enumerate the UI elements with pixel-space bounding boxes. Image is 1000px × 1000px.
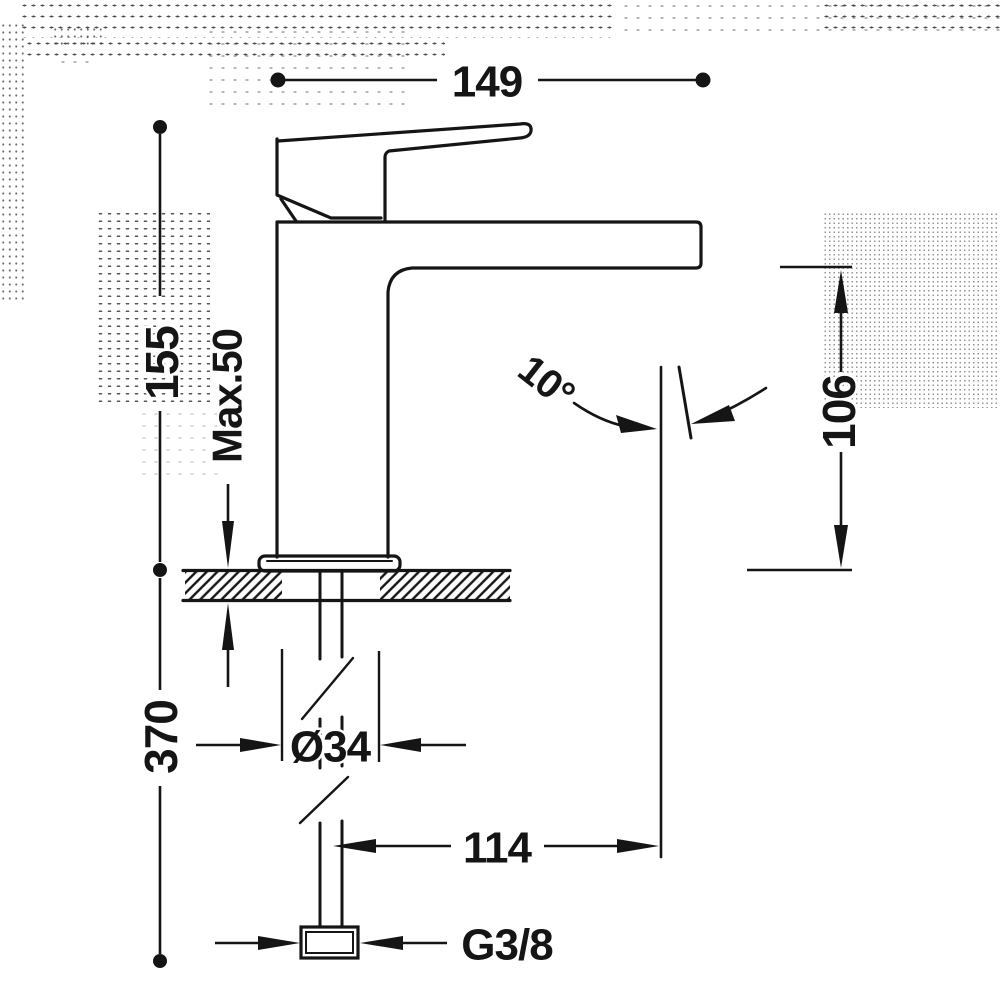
technical-drawing-canvas: 149 155 Max.50 370 <box>0 0 1000 1000</box>
thread-connector-nut-inner <box>306 932 353 953</box>
dim-dot <box>153 563 167 577</box>
label-outlet-reach: 114 <box>463 824 533 873</box>
dim-below-deck-length: 370 <box>135 578 187 968</box>
dim-dot <box>696 73 711 88</box>
dim-outlet-height: 106 <box>747 267 865 570</box>
label-outlet-height: 106 <box>813 375 865 449</box>
label-thread-size: G3/8 <box>461 921 553 970</box>
label-spout-width: 149 <box>452 58 522 107</box>
outlet-angle-line <box>679 367 691 438</box>
arrowhead-left <box>333 839 376 853</box>
dim-dot <box>153 120 167 134</box>
arrowhead-down <box>834 525 848 568</box>
handle-base <box>277 139 381 218</box>
dim-outlet-angle: 10° <box>510 347 766 433</box>
arrowhead-right <box>617 839 659 853</box>
dim-dot <box>153 954 167 968</box>
label-hole-diameter: Ø34 <box>290 723 372 772</box>
deck-hatch-left <box>185 572 282 599</box>
handle-lever <box>278 124 531 220</box>
dim-max-deck-thickness: Max.50 <box>204 329 251 687</box>
arrowhead-right <box>240 738 281 752</box>
label-below-deck-length: 370 <box>135 700 187 774</box>
deck-hatch-right <box>380 572 510 599</box>
arrowhead-up <box>222 603 234 650</box>
arrowhead-right <box>258 936 300 950</box>
label-max-deck-thickness: Max.50 <box>204 329 251 463</box>
angle-leader-left <box>574 403 624 426</box>
arrowhead-left <box>380 738 421 752</box>
arrowhead-up <box>834 270 848 313</box>
outlet-reference <box>661 367 691 857</box>
arrowhead-left <box>360 936 403 950</box>
label-height-above-deck: 155 <box>136 326 188 400</box>
dimensions-layer: 149 155 Max.50 370 <box>135 58 865 970</box>
arrowhead-down <box>222 521 234 568</box>
arrowhead-right <box>616 415 657 433</box>
label-outlet-angle: 10° <box>510 347 582 417</box>
faucet-body-outline <box>277 222 701 557</box>
dim-height-above-deck: 155 <box>136 120 188 577</box>
dim-hole-diameter: Ø34 <box>196 649 466 772</box>
arrowhead-left <box>691 405 735 424</box>
dim-outlet-reach: 114 <box>333 824 659 873</box>
dim-thread-size: G3/8 <box>215 921 553 970</box>
faucet-dimension-drawing: 149 155 Max.50 370 <box>0 0 1000 1000</box>
dim-spout-width: 149 <box>271 58 711 107</box>
countertop-section <box>183 571 510 601</box>
dim-dot <box>271 73 286 88</box>
faucet-body <box>259 124 701 571</box>
base-plate <box>259 556 400 571</box>
